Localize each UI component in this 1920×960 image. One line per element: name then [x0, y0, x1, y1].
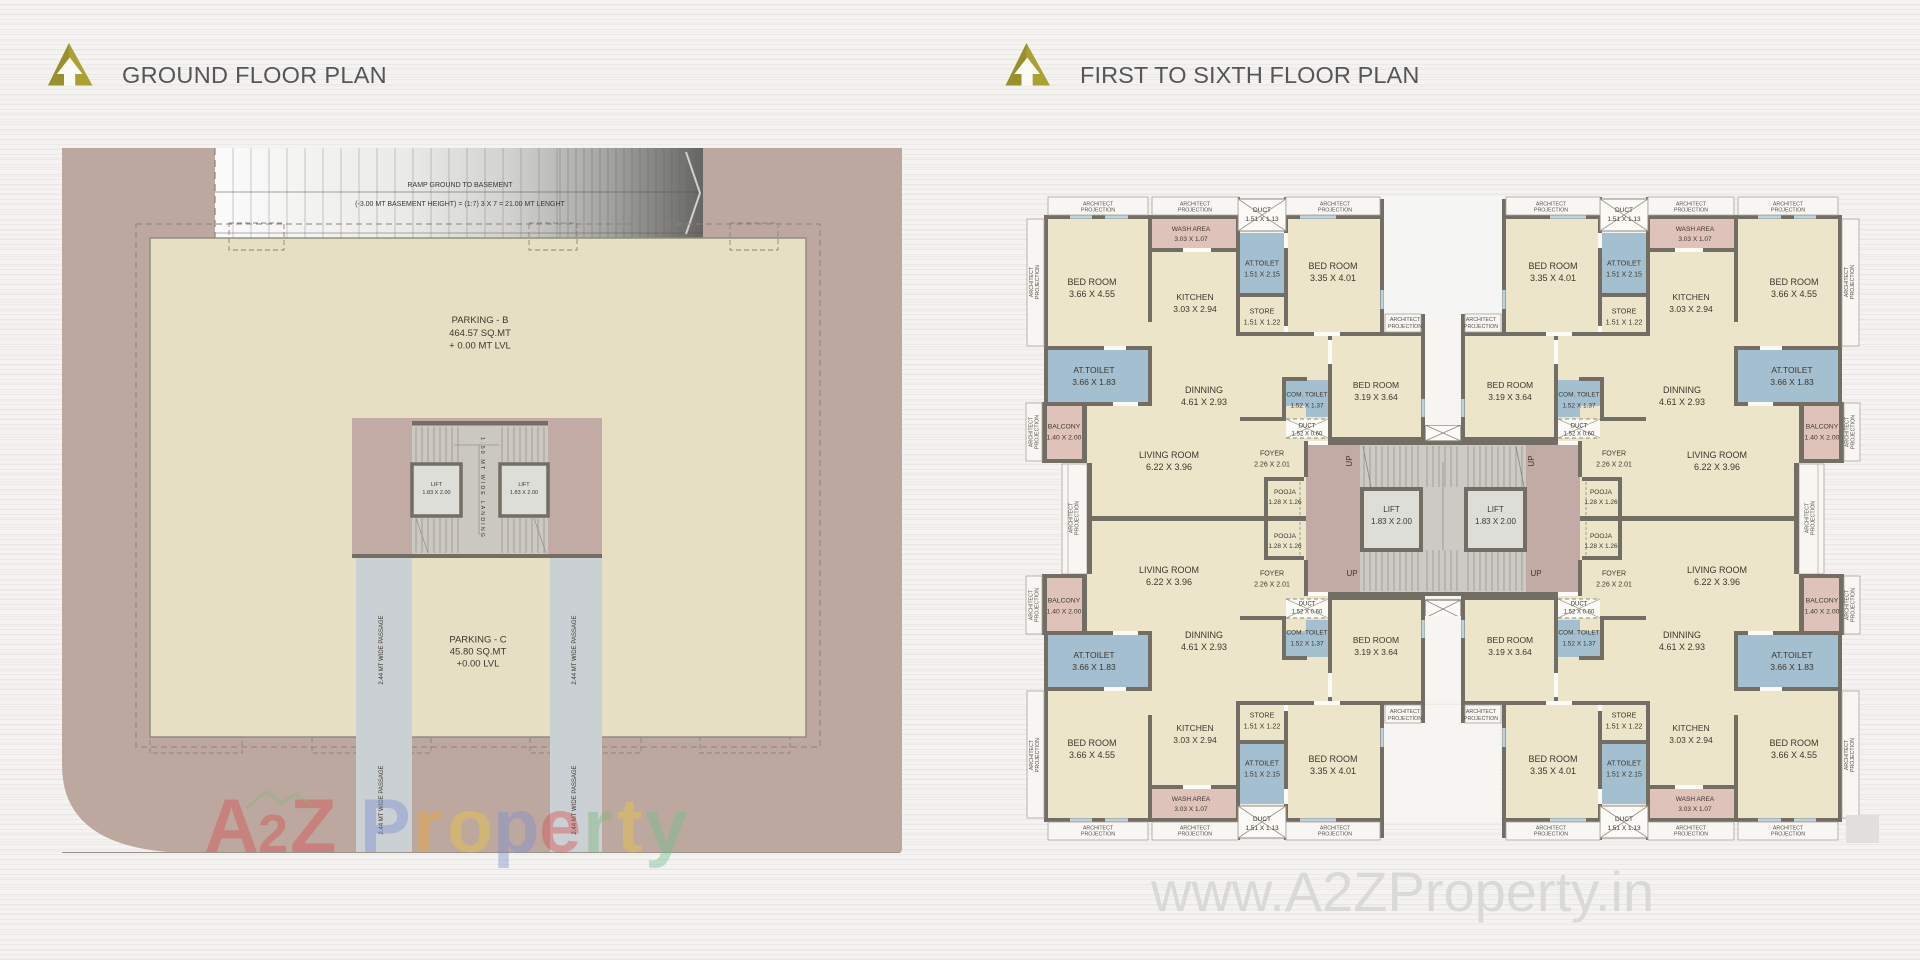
svg-text:PROJECTION: PROJECTION: [1178, 832, 1212, 838]
svg-text:FOYER: FOYER: [1602, 450, 1626, 457]
svg-text:BED ROOM: BED ROOM: [1308, 754, 1357, 764]
svg-text:A: A: [204, 784, 259, 869]
svg-text:1.40 X 2.00: 1.40 X 2.00: [1047, 608, 1082, 615]
svg-text:6.22 X 3.96: 6.22 X 3.96: [1146, 577, 1192, 587]
svg-text:4.61 X 2.93: 4.61 X 2.93: [1659, 397, 1705, 407]
svg-text:DUCT: DUCT: [1571, 424, 1588, 430]
svg-text:PROJECTION: PROJECTION: [1771, 832, 1805, 838]
svg-text:FOYER: FOYER: [1260, 570, 1284, 577]
svg-text:COM. TOILET: COM. TOILET: [1558, 391, 1599, 398]
svg-text:PROJECTION: PROJECTION: [1081, 208, 1115, 214]
svg-text:3.03 X 2.94: 3.03 X 2.94: [1173, 304, 1217, 314]
svg-text:WASH AREA: WASH AREA: [1676, 796, 1715, 803]
svg-text:6.22 X 3.96: 6.22 X 3.96: [1694, 577, 1740, 587]
svg-text:3.03 X 2.94: 3.03 X 2.94: [1173, 735, 1217, 745]
svg-text:DUCT: DUCT: [1615, 207, 1633, 214]
svg-text:UP: UP: [1527, 455, 1536, 466]
svg-text:3.03 X 1.07: 3.03 X 1.07: [1678, 806, 1712, 813]
svg-text:www.A2ZProperty.in: www.A2ZProperty.in: [1150, 860, 1654, 923]
svg-text:p: p: [493, 784, 539, 869]
svg-text:+0.00 LVL: +0.00 LVL: [457, 659, 500, 670]
svg-text:2.26 X 2.01: 2.26 X 2.01: [1596, 461, 1632, 468]
svg-text:BALCONY: BALCONY: [1806, 597, 1839, 604]
svg-text:2: 2: [258, 804, 288, 864]
svg-text:PROJECTION: PROJECTION: [1035, 265, 1041, 299]
svg-text:3.35 X 4.01: 3.35 X 4.01: [1530, 273, 1576, 283]
svg-text:STORE: STORE: [1612, 307, 1637, 316]
svg-text:UP: UP: [1346, 569, 1357, 578]
svg-text:POOJA: POOJA: [1274, 489, 1297, 496]
svg-text:1.83 X 2.00: 1.83 X 2.00: [510, 490, 538, 496]
svg-text:1.83 X 2.00: 1.83 X 2.00: [422, 490, 450, 496]
svg-text:LIVING ROOM: LIVING ROOM: [1139, 565, 1199, 575]
svg-text:BED ROOM: BED ROOM: [1528, 261, 1577, 271]
svg-text:PROJECTION: PROJECTION: [1674, 208, 1708, 214]
svg-text:KITCHEN: KITCHEN: [1672, 723, 1709, 733]
svg-text:AT.TOILET: AT.TOILET: [1607, 760, 1642, 767]
svg-text:GROUND FLOOR PLAN: GROUND FLOOR PLAN: [122, 62, 387, 88]
svg-text:AT.TOILET: AT.TOILET: [1771, 650, 1812, 660]
svg-text:o: o: [447, 784, 493, 869]
svg-text:1.51 X 1.22: 1.51 X 1.22: [1606, 722, 1643, 731]
svg-text:PROJECTION: PROJECTION: [1851, 415, 1857, 449]
svg-text:FOYER: FOYER: [1260, 450, 1284, 457]
svg-text:BED ROOM: BED ROOM: [1353, 380, 1399, 390]
svg-text:3.66 X 4.55: 3.66 X 4.55: [1771, 750, 1817, 760]
svg-text:LIVING ROOM: LIVING ROOM: [1687, 565, 1747, 575]
svg-text:2.26 X 2.01: 2.26 X 2.01: [1254, 581, 1290, 588]
svg-text:4.61 X 2.93: 4.61 X 2.93: [1181, 397, 1227, 407]
svg-text:P: P: [360, 784, 411, 869]
svg-text:1.51 X 2.15: 1.51 X 2.15: [1244, 271, 1280, 278]
svg-text:LIFT: LIFT: [1383, 505, 1400, 514]
svg-text:PROJECTION: PROJECTION: [1318, 832, 1352, 838]
svg-text:1.28 X 1.26: 1.28 X 1.26: [1584, 543, 1618, 550]
svg-text:PARKING - B: PARKING - B: [452, 315, 509, 326]
svg-text:FIRST TO SIXTH FLOOR PLAN: FIRST TO SIXTH FLOOR PLAN: [1080, 62, 1419, 88]
svg-text:PROJECTION: PROJECTION: [1464, 324, 1498, 330]
svg-text:DUCT: DUCT: [1615, 816, 1633, 823]
svg-text:PROJECTION: PROJECTION: [1035, 415, 1041, 449]
svg-text:BALCONY: BALCONY: [1048, 423, 1081, 430]
svg-text:BED ROOM: BED ROOM: [1769, 738, 1818, 748]
svg-text:UP: UP: [1530, 569, 1541, 578]
svg-text:PROJECTION: PROJECTION: [1771, 208, 1805, 214]
svg-text:POOJA: POOJA: [1590, 533, 1613, 540]
svg-text:WASH AREA: WASH AREA: [1172, 796, 1211, 803]
svg-text:AT.TOILET: AT.TOILET: [1607, 260, 1642, 267]
svg-text:POOJA: POOJA: [1274, 533, 1297, 540]
svg-text:BED ROOM: BED ROOM: [1487, 635, 1533, 645]
svg-text:1.51 X 1.13: 1.51 X 1.13: [1245, 216, 1279, 223]
svg-text:PROJECTION: PROJECTION: [1035, 738, 1041, 772]
svg-text:1.51 X 1.22: 1.51 X 1.22: [1606, 318, 1643, 327]
svg-text:3.03 X 2.94: 3.03 X 2.94: [1669, 304, 1713, 314]
svg-text:1.51 X 2.15: 1.51 X 2.15: [1244, 771, 1280, 778]
svg-text:1.52 X 1.37: 1.52 X 1.37: [1562, 402, 1596, 409]
svg-text:KITCHEN: KITCHEN: [1176, 292, 1213, 302]
svg-text:DINNING: DINNING: [1185, 385, 1223, 395]
svg-text:BED ROOM: BED ROOM: [1353, 635, 1399, 645]
svg-text:1.83 X 2.00: 1.83 X 2.00: [1371, 517, 1412, 526]
svg-text:DUCT: DUCT: [1253, 816, 1271, 823]
svg-text:PROJECTION: PROJECTION: [1534, 208, 1568, 214]
svg-text:UP: UP: [1345, 455, 1354, 466]
svg-text:3.66 X 4.55: 3.66 X 4.55: [1771, 289, 1817, 299]
svg-text:3.19 X 3.64: 3.19 X 3.64: [1488, 392, 1532, 402]
svg-text:1.40 X 2.00: 1.40 X 2.00: [1805, 434, 1840, 441]
svg-text:PROJECTION: PROJECTION: [1178, 208, 1212, 214]
svg-text:ARCHITECT: ARCHITECT: [1466, 709, 1497, 715]
svg-text:3.66 X 1.83: 3.66 X 1.83: [1770, 662, 1814, 672]
svg-text:1.40 X 2.00: 1.40 X 2.00: [1047, 434, 1082, 441]
svg-text:1.28 X 1.26: 1.28 X 1.26: [1268, 499, 1302, 506]
svg-text:1.52 X 1.37: 1.52 X 1.37: [1562, 640, 1596, 647]
svg-text:PROJECTION: PROJECTION: [1464, 716, 1498, 722]
svg-text:1.83 X 2.00: 1.83 X 2.00: [1475, 517, 1516, 526]
svg-text:t: t: [617, 784, 642, 869]
svg-text:4.61 X 2.93: 4.61 X 2.93: [1659, 642, 1705, 652]
svg-text:r: r: [583, 784, 613, 869]
svg-text:2.44 MT WIDE PASSAGE: 2.44 MT WIDE PASSAGE: [572, 615, 578, 684]
svg-text:DUCT: DUCT: [1299, 424, 1316, 430]
svg-text:3.03 X 1.07: 3.03 X 1.07: [1174, 806, 1208, 813]
svg-text:PROJECTION: PROJECTION: [1811, 501, 1817, 535]
svg-text:3.66 X 4.55: 3.66 X 4.55: [1069, 750, 1115, 760]
svg-text:1.51 X 1.13: 1.51 X 1.13: [1607, 825, 1641, 832]
svg-text:COM. TOILET: COM. TOILET: [1558, 629, 1599, 636]
svg-text:2.44 MT WIDE PASSAGE: 2.44 MT WIDE PASSAGE: [379, 615, 385, 684]
svg-text:DUCT: DUCT: [1571, 602, 1588, 608]
svg-text:3.66 X 1.83: 3.66 X 1.83: [1770, 377, 1814, 387]
svg-text:PROJECTION: PROJECTION: [1851, 588, 1857, 622]
svg-text:BED ROOM: BED ROOM: [1487, 380, 1533, 390]
svg-text:1.51 X 1.22: 1.51 X 1.22: [1244, 722, 1281, 731]
svg-text:1.28 X 1.26: 1.28 X 1.26: [1268, 543, 1302, 550]
svg-text:PROJECTION: PROJECTION: [1388, 716, 1422, 722]
svg-text:464.57 SQ.MT: 464.57 SQ.MT: [449, 328, 511, 339]
svg-text:BED ROOM: BED ROOM: [1308, 261, 1357, 271]
svg-text:ARCHITECT: ARCHITECT: [1390, 317, 1421, 323]
svg-text:KITCHEN: KITCHEN: [1176, 723, 1213, 733]
svg-text:BED ROOM: BED ROOM: [1528, 754, 1577, 764]
svg-text:LIFT: LIFT: [518, 482, 530, 488]
svg-text:KITCHEN: KITCHEN: [1672, 292, 1709, 302]
svg-text:BALCONY: BALCONY: [1806, 423, 1839, 430]
svg-text:1.52 X 0.60: 1.52 X 0.60: [1564, 610, 1595, 616]
svg-text:LIVING ROOM: LIVING ROOM: [1687, 450, 1747, 460]
svg-text:BED ROOM: BED ROOM: [1067, 277, 1116, 287]
svg-text:1.51 X 2.15: 1.51 X 2.15: [1606, 771, 1642, 778]
svg-text:2.26 X 2.01: 2.26 X 2.01: [1596, 581, 1632, 588]
svg-text:PROJECTION: PROJECTION: [1388, 324, 1422, 330]
svg-text:1.51 X 2.15: 1.51 X 2.15: [1606, 271, 1642, 278]
svg-text:BALCONY: BALCONY: [1048, 597, 1081, 604]
svg-text:ARCHITECT: ARCHITECT: [1466, 317, 1497, 323]
svg-text:45.80 SQ.MT: 45.80 SQ.MT: [450, 646, 507, 657]
svg-text:4.61 X 2.93: 4.61 X 2.93: [1181, 642, 1227, 652]
svg-text:1.51 X 1.13: 1.51 X 1.13: [1607, 216, 1641, 223]
svg-text:3.19 X 3.64: 3.19 X 3.64: [1488, 647, 1532, 657]
svg-text:DUCT: DUCT: [1299, 602, 1316, 608]
svg-text:PARKING - C: PARKING - C: [449, 634, 506, 645]
svg-text:WASH AREA: WASH AREA: [1676, 226, 1715, 233]
svg-text:1.51 X 1.22: 1.51 X 1.22: [1244, 318, 1281, 327]
svg-text:PROJECTION: PROJECTION: [1318, 208, 1352, 214]
svg-text:AT.TOILET: AT.TOILET: [1245, 760, 1280, 767]
svg-text:2.26 X 2.01: 2.26 X 2.01: [1254, 461, 1290, 468]
svg-text:3.35 X 4.01: 3.35 X 4.01: [1530, 766, 1576, 776]
svg-text:BED ROOM: BED ROOM: [1067, 738, 1116, 748]
svg-text:RAMP GROUND TO BASEMENT: RAMP GROUND TO BASEMENT: [407, 182, 513, 189]
svg-text:AT.TOILET: AT.TOILET: [1771, 365, 1812, 375]
svg-text:STORE: STORE: [1250, 307, 1275, 316]
svg-text:PROJECTION: PROJECTION: [1674, 832, 1708, 838]
svg-text:1.50 MT WIDE LANDING: 1.50 MT WIDE LANDING: [479, 437, 485, 539]
svg-text:3.66 X 4.55: 3.66 X 4.55: [1069, 289, 1115, 299]
svg-text:1.52 X 1.37: 1.52 X 1.37: [1290, 640, 1324, 647]
svg-text:PROJECTION: PROJECTION: [1081, 832, 1115, 838]
svg-text:3.03 X 2.94: 3.03 X 2.94: [1669, 735, 1713, 745]
svg-text:LIVING ROOM: LIVING ROOM: [1139, 450, 1199, 460]
svg-text:3.35 X 4.01: 3.35 X 4.01: [1310, 273, 1356, 283]
svg-text:PROJECTION: PROJECTION: [1075, 501, 1081, 535]
svg-text:1.52 X 1.37: 1.52 X 1.37: [1290, 402, 1324, 409]
svg-text:y: y: [645, 784, 687, 869]
svg-text:3.03 X 1.07: 3.03 X 1.07: [1174, 236, 1208, 243]
svg-text:PROJECTION: PROJECTION: [1035, 588, 1041, 622]
svg-text:3.19 X 3.64: 3.19 X 3.64: [1354, 392, 1398, 402]
svg-text:(-3.00 MT BASEMENT HEIGHT) = (: (-3.00 MT BASEMENT HEIGHT) = (1:7) 3 X 7…: [355, 201, 565, 208]
svg-text:AT.TOILET: AT.TOILET: [1073, 650, 1114, 660]
svg-text:PROJECTION: PROJECTION: [1850, 265, 1856, 299]
svg-text:ARCHITECT: ARCHITECT: [1390, 709, 1421, 715]
svg-text:6.22 X 3.96: 6.22 X 3.96: [1146, 462, 1192, 472]
svg-text:3.66 X 1.83: 3.66 X 1.83: [1072, 662, 1116, 672]
svg-text:BED ROOM: BED ROOM: [1769, 277, 1818, 287]
svg-text:DINNING: DINNING: [1663, 630, 1701, 640]
svg-text:LIFT: LIFT: [431, 482, 443, 488]
svg-text:6.22 X 3.96: 6.22 X 3.96: [1694, 462, 1740, 472]
svg-text:DINNING: DINNING: [1663, 385, 1701, 395]
svg-text:3.03 X 1.07: 3.03 X 1.07: [1678, 236, 1712, 243]
svg-text:3.35 X 4.01: 3.35 X 4.01: [1310, 766, 1356, 776]
svg-text:r: r: [413, 784, 443, 869]
svg-text:DINNING: DINNING: [1185, 630, 1223, 640]
svg-text:Z: Z: [290, 784, 336, 869]
svg-text:PROJECTION: PROJECTION: [1534, 832, 1568, 838]
svg-text:WASH AREA: WASH AREA: [1172, 226, 1211, 233]
svg-text:DUCT: DUCT: [1253, 207, 1271, 214]
svg-text:STORE: STORE: [1250, 711, 1275, 720]
svg-text:1.51 X 1.13: 1.51 X 1.13: [1245, 825, 1279, 832]
svg-text:1.52 X 0.60: 1.52 X 0.60: [1292, 610, 1323, 616]
svg-text:1.40 X 2.00: 1.40 X 2.00: [1805, 608, 1840, 615]
svg-text:FOYER: FOYER: [1602, 570, 1626, 577]
svg-text:LIFT: LIFT: [1487, 505, 1504, 514]
svg-text:e: e: [539, 784, 581, 869]
svg-text:AT.TOILET: AT.TOILET: [1245, 260, 1280, 267]
svg-text:STORE: STORE: [1612, 711, 1637, 720]
svg-text:POOJA: POOJA: [1590, 489, 1613, 496]
svg-text:AT.TOILET: AT.TOILET: [1073, 365, 1114, 375]
svg-text:1.28 X 1.26: 1.28 X 1.26: [1584, 499, 1618, 506]
svg-text:1.52 X 0.60: 1.52 X 0.60: [1564, 432, 1595, 438]
svg-text:3.19 X 3.64: 3.19 X 3.64: [1354, 647, 1398, 657]
svg-text:3.66 X 1.83: 3.66 X 1.83: [1072, 377, 1116, 387]
svg-text:+ 0.00 MT LVL: + 0.00 MT LVL: [449, 341, 511, 352]
svg-text:COM. TOILET: COM. TOILET: [1286, 629, 1327, 636]
svg-text:COM. TOILET: COM. TOILET: [1286, 391, 1327, 398]
svg-text:1.52 X 0.60: 1.52 X 0.60: [1292, 432, 1323, 438]
svg-text:PROJECTION: PROJECTION: [1850, 738, 1856, 772]
